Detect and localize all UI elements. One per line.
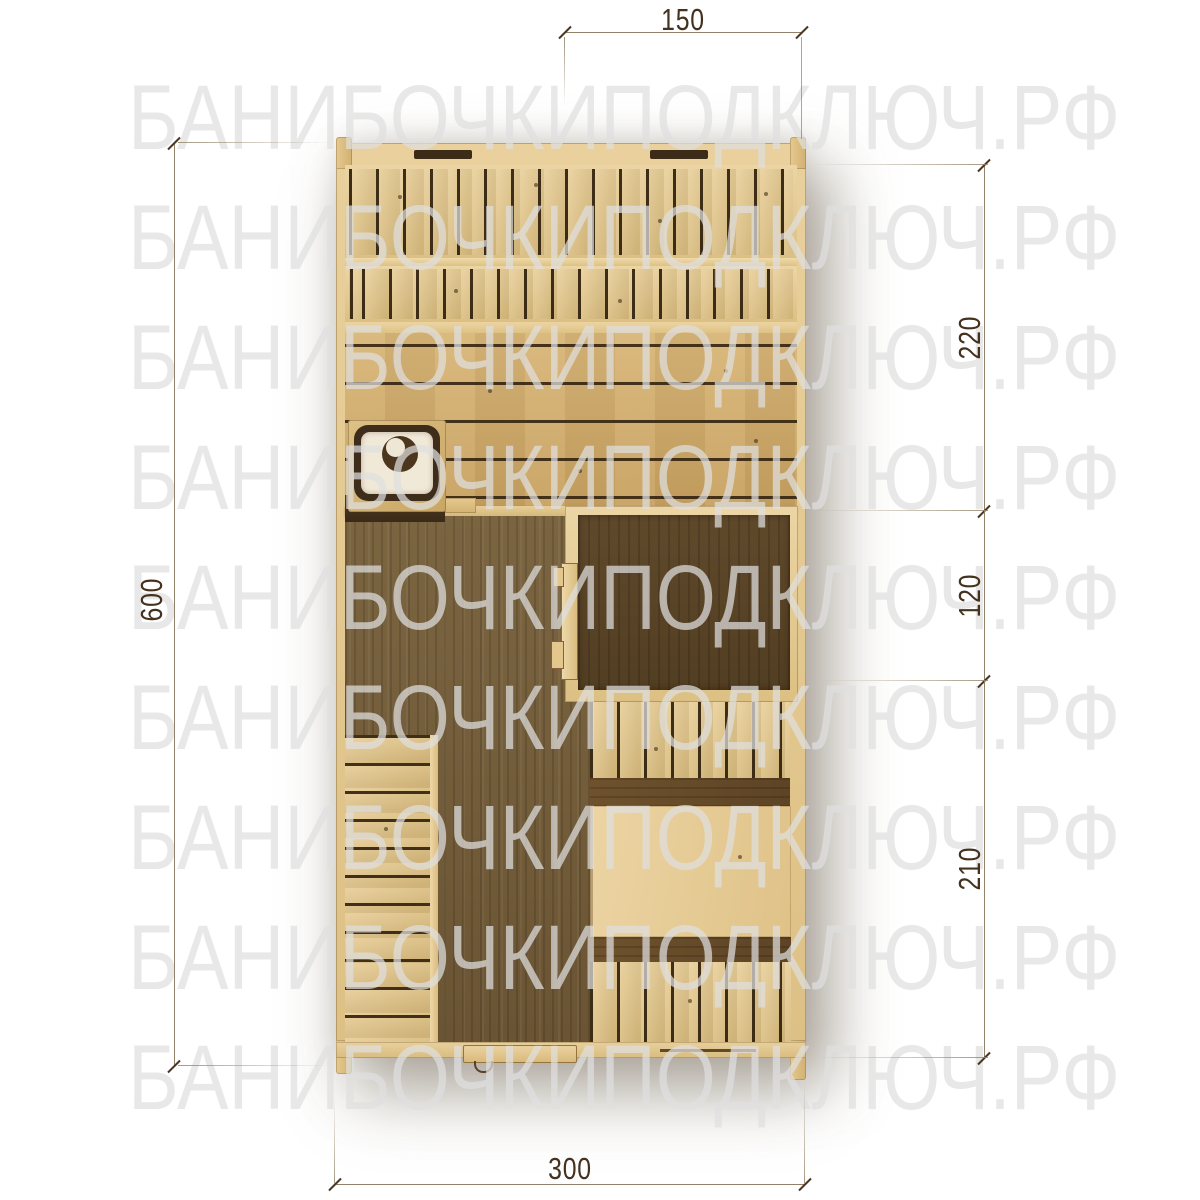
dimension-label: 220 bbox=[954, 278, 986, 398]
sauna-floor-plan-drawing: БАНИБОЧКИПОДКЛЮЧ.РФ БАНИБОЧКИПОДКЛЮЧ.РФ … bbox=[0, 0, 1200, 1200]
bench-slats bbox=[349, 169, 793, 255]
floor-strip-1 bbox=[590, 778, 790, 806]
bench-slats bbox=[349, 269, 793, 319]
bench-top-lower bbox=[345, 266, 797, 322]
stove-body bbox=[354, 425, 440, 501]
floor-strip-2 bbox=[590, 937, 791, 962]
dimension-label: 600 bbox=[136, 540, 168, 660]
bench-top-upper bbox=[345, 165, 797, 258]
vent-block-left bbox=[414, 150, 472, 159]
dimension-label: 210 bbox=[954, 809, 986, 929]
dimension-label: 150 bbox=[643, 2, 723, 38]
vent-block-right bbox=[650, 150, 708, 159]
door-hinge-top bbox=[553, 567, 564, 587]
door-hinge-bottom bbox=[551, 641, 564, 669]
steam-room bbox=[565, 506, 798, 702]
bench-right-upper bbox=[590, 702, 790, 778]
stove-chimney-hole-inner bbox=[386, 438, 405, 457]
hearth-side-board bbox=[445, 498, 476, 513]
sauna-plan bbox=[336, 137, 806, 1058]
dimension-label: 120 bbox=[954, 536, 986, 656]
table-panel bbox=[590, 806, 791, 937]
bench-left-lower bbox=[345, 735, 430, 1042]
bench-rail bbox=[345, 258, 797, 266]
bench-left-rail bbox=[430, 735, 438, 1042]
threshold-handle bbox=[474, 1061, 493, 1073]
steam-room-floor bbox=[578, 515, 790, 690]
stove bbox=[348, 420, 446, 512]
bench-rail bbox=[345, 322, 797, 333]
dimension-label: 300 bbox=[530, 1151, 610, 1187]
bottom-mat-line bbox=[660, 1049, 756, 1052]
